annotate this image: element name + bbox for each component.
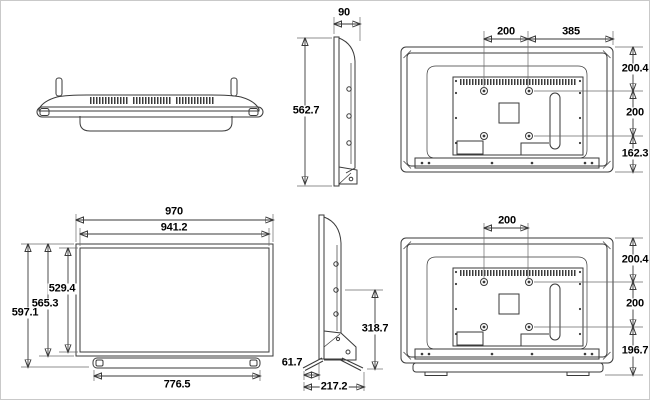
dim-label-front-overall-width: 970 — [165, 207, 183, 218]
dim-label-side-depth: 90 — [338, 8, 350, 19]
dim-label-rear-right-offset: 385 — [562, 27, 580, 38]
diagram-canvas — [1, 1, 650, 400]
dim-label-rear2-vesa-horizontal: 200 — [498, 216, 516, 227]
side-with-stand-drawing — [303, 215, 383, 391]
dim-label-rear-vesa-horizontal: 200 — [497, 27, 515, 38]
dim-label-stand-mount-height: 318.7 — [361, 324, 390, 335]
dim-label-front-overall-height: 597.1 — [11, 308, 40, 319]
dim-label-rear2-bottom-offset: 196.7 — [621, 346, 650, 357]
dim-label-rear-bottom-offset: 162.3 — [621, 149, 650, 160]
dim-label-stand-depth: 217.2 — [320, 382, 349, 393]
rear-view-dimensions — [484, 31, 643, 172]
dimension-diagram: 90 562.7 200 385 200.4 200 162.3 970 941… — [0, 0, 650, 400]
dim-label-front-screen-height: 529.4 — [48, 284, 77, 295]
dim-label-rear2-vesa-vertical: 200 — [625, 299, 645, 310]
front-view-drawing — [21, 214, 273, 381]
rear-view-drawing — [401, 47, 613, 172]
dim-label-rear-vesa-vertical: 200 — [625, 108, 645, 119]
rear-with-stand-drawing — [401, 223, 643, 376]
dim-label-stand-front-overhang: 61.7 — [282, 358, 303, 369]
dim-label-rear-top-offset: 200.4 — [621, 64, 650, 75]
dim-label-rear2-top-offset: 200.4 — [621, 255, 650, 266]
dim-label-front-screen-width: 941.2 — [161, 223, 188, 234]
dim-label-side-height: 562.7 — [292, 106, 321, 117]
top-view-drawing — [37, 78, 263, 131]
dim-label-front-stand-width: 776.5 — [164, 380, 191, 391]
side-view-drawing — [297, 17, 360, 186]
